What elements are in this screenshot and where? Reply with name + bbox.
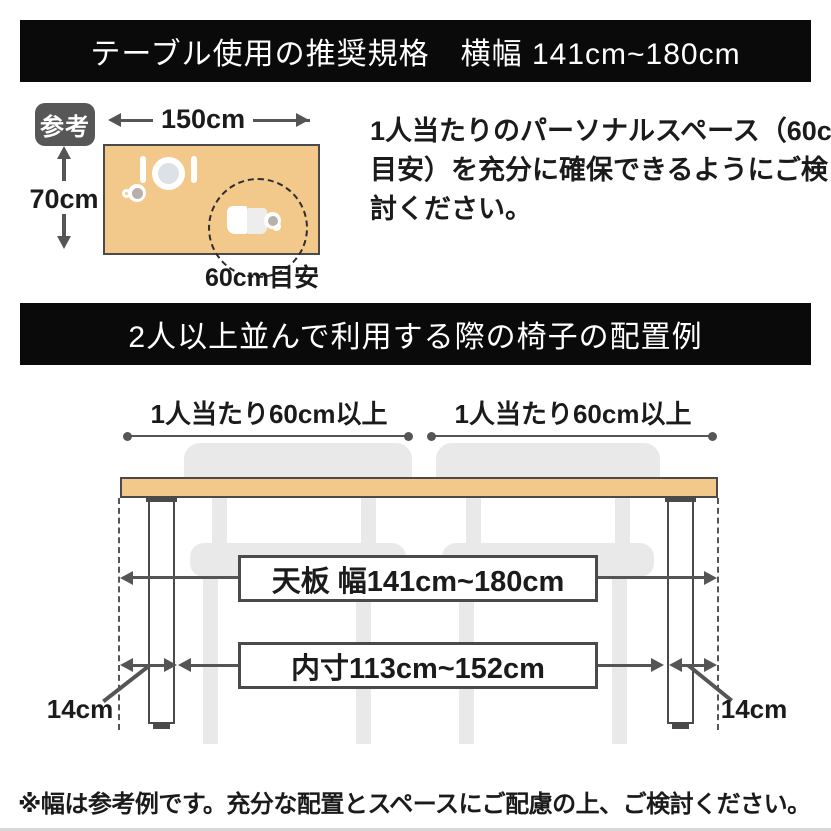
inner-arrow-left — [190, 664, 238, 667]
arrowhead-right-icon — [296, 113, 309, 127]
leg-inset-label-right: 14cm — [714, 694, 794, 725]
table-leg-left — [148, 498, 175, 724]
plate-inner-icon — [158, 163, 179, 184]
depth-dimension-label: 70cm — [26, 184, 102, 215]
chair-layout-banner-title: 2人以上並んで利用する際の椅子の配置例 — [128, 312, 702, 356]
per-person-line-right — [431, 435, 713, 437]
depth-dimension-line-bottom — [62, 214, 66, 237]
table-leg-foot — [153, 722, 170, 729]
per-person-label-right: 1人当たり60cm以上 — [429, 394, 717, 431]
tabletop-arrow-left — [132, 576, 238, 579]
chair-backrest-right — [436, 443, 660, 479]
cutlery-knife-icon — [140, 156, 146, 183]
per-person-line-left — [127, 435, 409, 437]
arrowhead-right-icon — [704, 658, 717, 672]
table-leg-cap — [146, 498, 177, 502]
line-dot-icon — [404, 432, 413, 441]
width-dimension-label: 150cm — [153, 104, 253, 135]
arrowhead-down-icon — [57, 236, 71, 249]
arrowhead-right-icon — [164, 658, 177, 672]
inner-dimension-box: 内寸113cm~152cm — [238, 642, 598, 689]
description-line-1: 1人当たりのパーソナルスペース（60cm — [370, 112, 831, 151]
depth-dimension-line-top — [62, 158, 66, 181]
open-book-left-page-icon — [227, 206, 247, 234]
chair-backrest-left — [184, 443, 412, 479]
reference-badge: 参考 — [35, 103, 95, 146]
arrowhead-left-icon — [108, 113, 121, 127]
top-banner: テーブル使用の推奨規格 横幅 141cm~180cm — [20, 20, 811, 82]
per-person-label-left: 1人当たり60cm以上 — [125, 394, 413, 431]
cup-inner-icon — [268, 216, 278, 226]
line-dot-icon — [123, 432, 132, 441]
line-dot-icon — [708, 432, 717, 441]
arrowhead-right-icon — [651, 658, 664, 672]
reference-badge-label: 参考 — [40, 107, 90, 142]
table-leg-foot — [672, 722, 689, 729]
chair-layout-banner: 2人以上並んで利用する際の椅子の配置例 — [20, 303, 811, 365]
footnote: ※幅は参考例です。充分な配置とスペースにご配慮の上、ご検討ください。 — [18, 784, 818, 819]
top-banner-title: テーブル使用の推奨規格 横幅 141cm~180cm — [90, 29, 740, 73]
table-leg-cap — [665, 498, 696, 502]
tabletop-arrow-right — [598, 576, 705, 579]
inner-arrow-right — [598, 664, 652, 667]
chair-leg — [612, 577, 627, 744]
table-leg-right — [667, 498, 694, 724]
inner-dimension-label: 内寸113cm~152cm — [291, 645, 545, 687]
chair-leg — [203, 577, 218, 744]
personal-space-label: 60cm目安 — [205, 258, 315, 294]
description-line-2: 目安）を充分に確保できるようにご検 — [370, 151, 831, 190]
cutlery-fork-icon — [191, 156, 197, 183]
teacup-inner-icon — [132, 188, 143, 199]
line-dot-icon — [427, 432, 436, 441]
description-line-3: 討ください。 — [370, 190, 831, 229]
tabletop-dimension-label: 天板 幅141cm~180cm — [272, 558, 565, 600]
tabletop-dimension-box: 天板 幅141cm~180cm — [238, 555, 598, 602]
personal-space-description: 1人当たりのパーソナルスペース（60cm 目安）を充分に確保できるようにご検 討… — [370, 112, 831, 229]
leg-inset-label-left: 14cm — [40, 694, 120, 725]
tabletop-front-view — [120, 477, 718, 498]
infographic-canvas: テーブル使用の推奨規格 横幅 141cm~180cm 参考 150cm 70cm… — [0, 0, 831, 831]
arrowhead-right-icon — [704, 571, 717, 585]
